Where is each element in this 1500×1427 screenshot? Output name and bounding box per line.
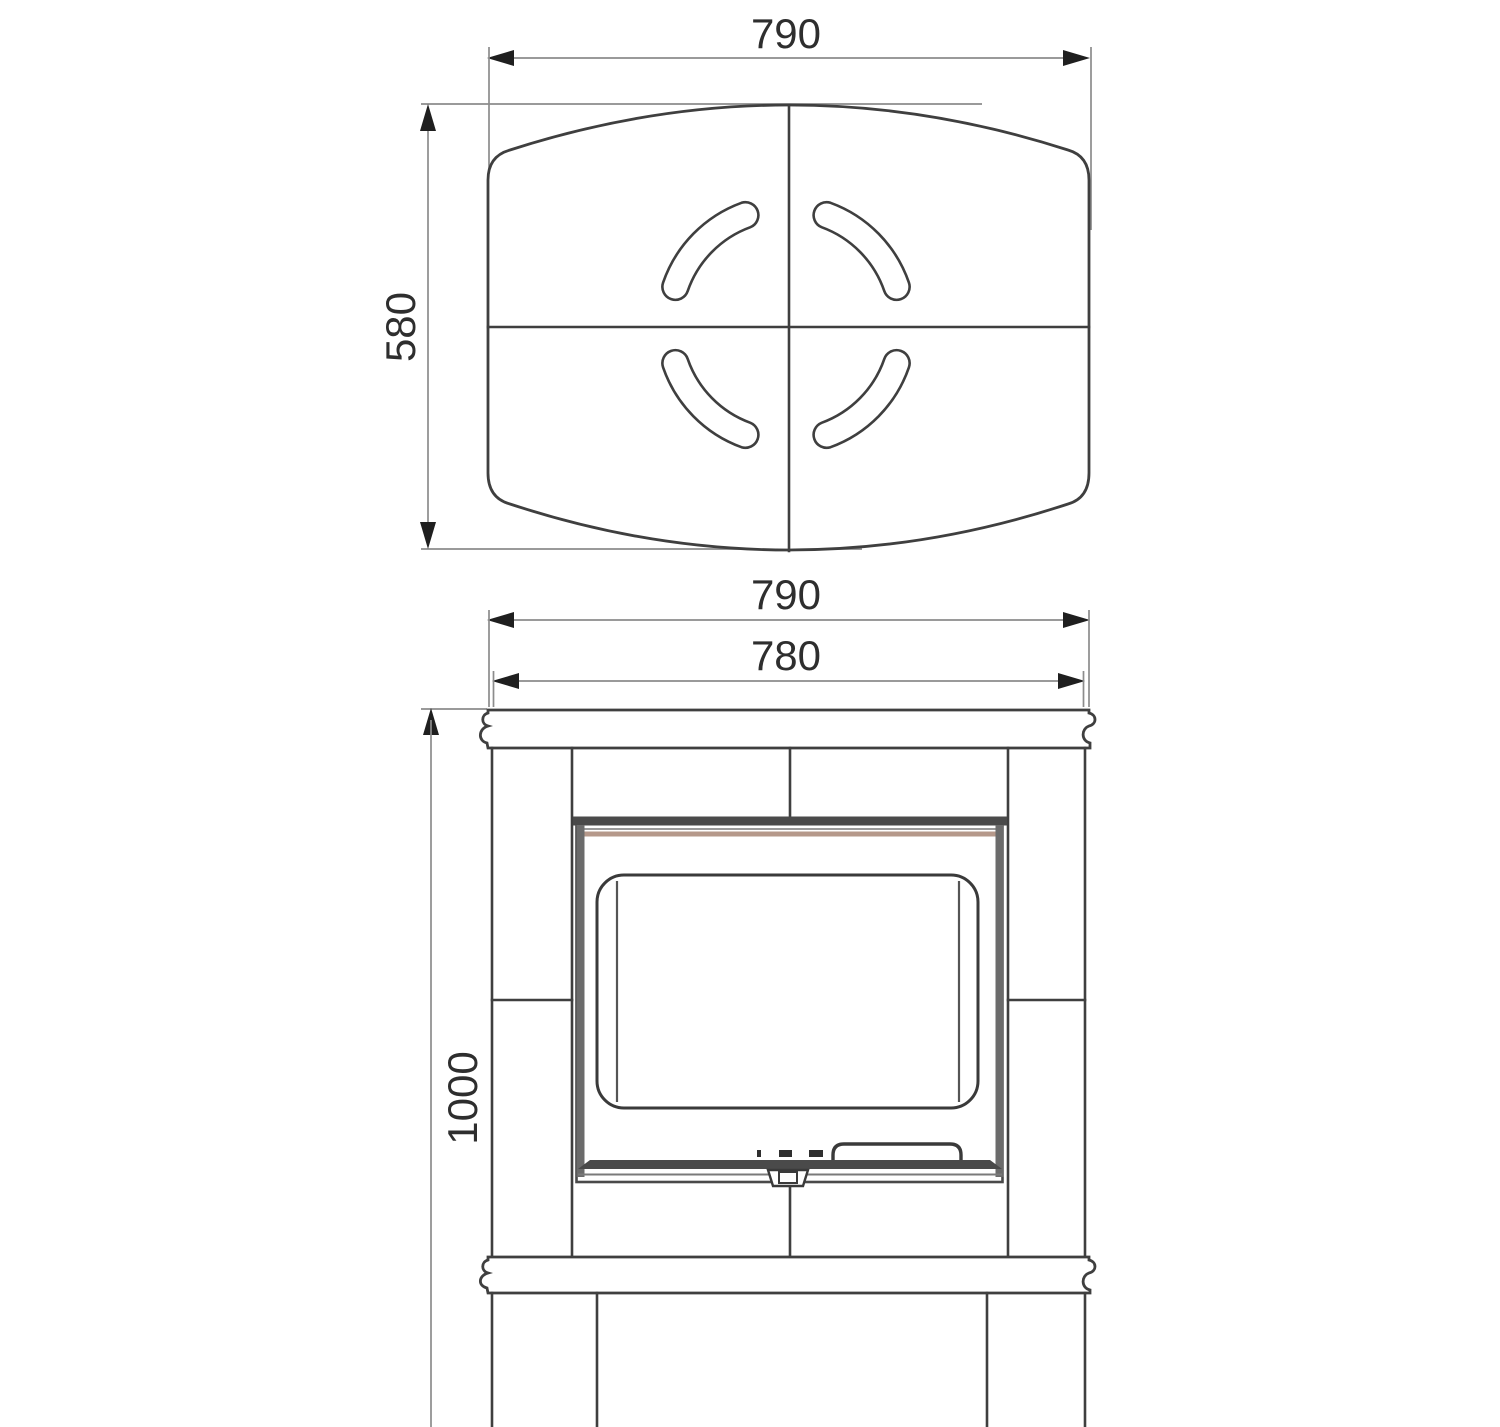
air-control-dot-icon xyxy=(757,1150,761,1157)
front-view-top-width-label: 790 xyxy=(751,571,821,618)
air-control-slider-icon xyxy=(809,1150,823,1157)
arrowhead-right-icon xyxy=(1063,50,1090,66)
plinth-band xyxy=(480,1257,1095,1293)
front-view-body-width-dimension: 780 xyxy=(492,632,1085,707)
front-view-body-width-label: 780 xyxy=(751,632,821,679)
arrowhead-left-icon xyxy=(492,673,519,689)
top-plate-band xyxy=(480,710,1095,748)
arrowhead-right-icon xyxy=(1063,612,1090,628)
top-view: 790 580 xyxy=(377,10,1091,551)
front-view-height-label: 1000 xyxy=(439,1051,486,1144)
drawing-canvas: 790 580 790 xyxy=(0,0,1500,1427)
front-view-height-dimension: 1000 xyxy=(421,708,487,1427)
door-latch xyxy=(768,1170,808,1186)
top-view-width-label: 790 xyxy=(751,10,821,57)
door-glass xyxy=(597,875,978,1108)
door-bottom-sill xyxy=(578,1160,1002,1169)
door-top-bar xyxy=(573,817,1007,826)
arrowhead-up-icon xyxy=(420,104,436,131)
top-view-depth-label: 580 xyxy=(377,292,424,362)
door-frame-right-bar xyxy=(996,825,1004,1177)
front-view: 790 780 1000 xyxy=(421,571,1095,1427)
firebox-door xyxy=(573,817,1007,1187)
arrowhead-left-icon xyxy=(487,612,514,628)
arrowhead-left-icon xyxy=(487,50,514,66)
stove-dimension-drawing: 790 580 790 xyxy=(0,0,1500,1427)
door-frame-left-bar xyxy=(577,825,585,1177)
arrowhead-down-icon xyxy=(420,522,436,549)
door-accent-stripe xyxy=(584,832,996,837)
air-control-slider-icon xyxy=(779,1150,792,1157)
base-pedestal xyxy=(492,1293,1085,1427)
arrowhead-right-icon xyxy=(1058,673,1085,689)
